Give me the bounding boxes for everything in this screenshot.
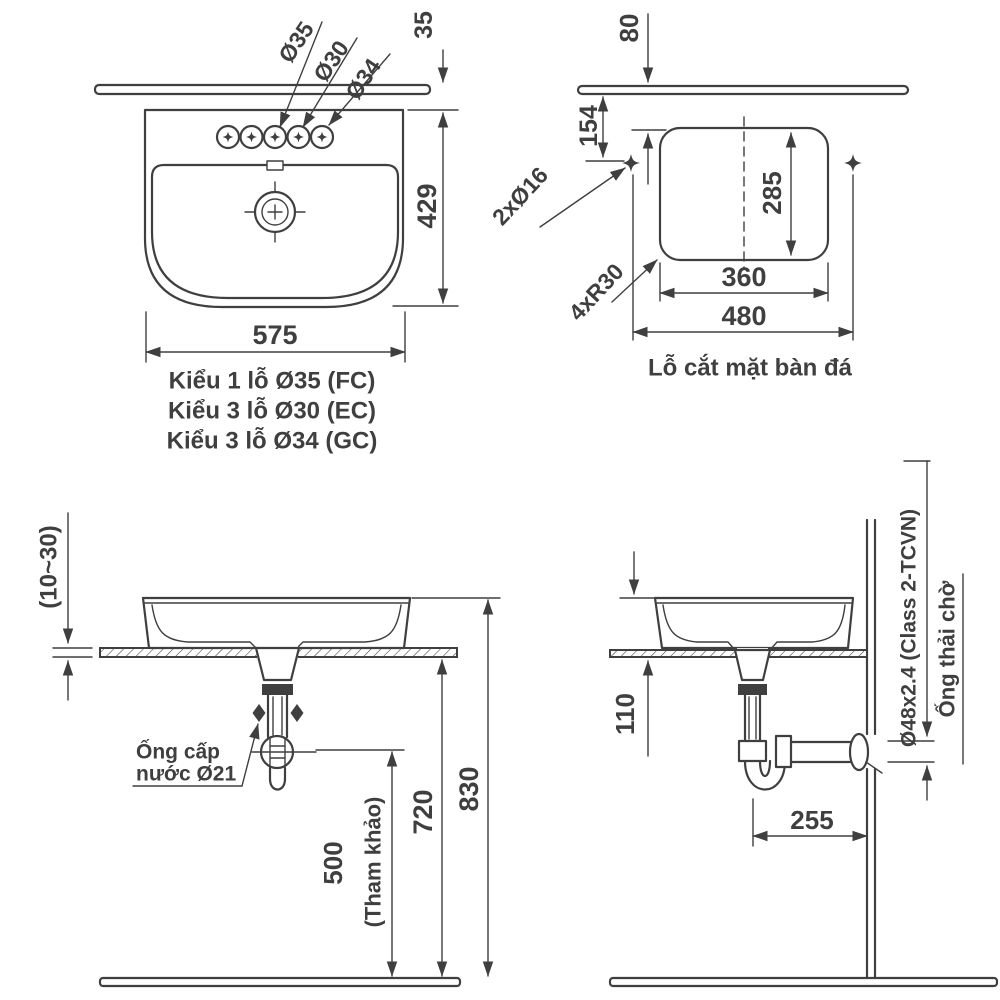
- dim-500-label: 500: [318, 841, 348, 884]
- hole-label-d35: Ø35: [273, 17, 319, 68]
- supply-point-right: [291, 704, 304, 722]
- side-install-view: 110 Ø48x2.4 (Class 2-TCVN) Ống thải chờ …: [610, 461, 997, 986]
- supply-point-left: [253, 704, 266, 722]
- drain-flange-front: [256, 648, 299, 680]
- dim-500-note: (Tham khảo): [361, 797, 386, 928]
- drain-flange-side: [735, 650, 770, 680]
- supply-label-line1: Ống cấp: [136, 740, 220, 764]
- waste-stub-label: Ống thải chờ: [934, 580, 960, 717]
- dim-429-label: 429: [412, 183, 442, 228]
- dim-154-label: 154: [575, 105, 603, 147]
- fixing-hole-right: [844, 154, 862, 172]
- drain-pipe-label: Ø48x2.4 (Class 2-TCVN): [898, 509, 921, 747]
- plan-view: Ø35 Ø30 Ø34 35 429 575 Kiểu 1 lỗ Ø35 (FC…: [95, 11, 458, 454]
- drain-nut-front: [262, 684, 293, 695]
- floor-line-side: [610, 978, 997, 986]
- dim-480-label: 480: [721, 301, 766, 331]
- dim-830-label: 830: [454, 766, 484, 811]
- drain-nut-side: [738, 684, 767, 695]
- fixing-hole-left: [622, 154, 640, 172]
- dim-80-label: 80: [614, 14, 644, 43]
- caption-type-ec: Kiểu 3 lỗ Ø30 (EC): [168, 397, 376, 425]
- sink-installation-drawing: Ø35 Ø30 Ø34 35 429 575 Kiểu 1 lỗ Ø35 (FC…: [0, 0, 1000, 1000]
- caption-type-fc: Kiểu 1 lỗ Ø35 (FC): [169, 367, 376, 395]
- dim-360-label: 360: [721, 262, 766, 292]
- wall-line-plan: [95, 85, 430, 94]
- caption-type-gc: Kiểu 3 lỗ Ø34 (GC): [167, 427, 378, 455]
- supply-leader: [242, 724, 258, 786]
- p-trap-inner: [760, 761, 770, 776]
- cutout-view: 80 154 285 2xØ16 4xR30 360 480 Lỗ cắt mặ…: [487, 14, 908, 382]
- dim-110-label: 110: [610, 693, 640, 735]
- leader-2xd16: [540, 168, 625, 227]
- cutout-caption: Lỗ cắt mặt bàn đá: [648, 354, 853, 382]
- dim-255-label: 255: [790, 805, 833, 835]
- technical-drawing-page: Ø35 Ø30 Ø34 35 429 575 Kiểu 1 lỗ Ø35 (FC…: [0, 0, 1000, 1000]
- dim-10-30-label: (10~30): [36, 525, 63, 608]
- wall-line-cutout: [578, 86, 908, 94]
- hole-label-d34: Ø34: [340, 54, 386, 105]
- dim-285-label: 285: [757, 171, 787, 214]
- label-2xd16: 2xØ16: [487, 162, 553, 230]
- stub-cap-front: [270, 779, 285, 790]
- floor-line-front: [100, 978, 460, 986]
- overflow-notch: [267, 161, 283, 170]
- pipe-union-nut: [776, 736, 791, 767]
- dim-575-label: 575: [252, 320, 297, 350]
- sink-section-front: [143, 598, 410, 648]
- front-install-view: (10~30) Ống cấp nước Ø21 5: [36, 513, 501, 986]
- wall-pipe-collar: [850, 734, 868, 770]
- faucet-holes: [217, 126, 333, 148]
- trap-nut: [739, 741, 766, 761]
- dim-35-label: 35: [410, 11, 438, 39]
- label-4xr30: 4xR30: [563, 258, 628, 325]
- supply-label-line2: nước Ø21: [136, 763, 236, 786]
- dim-720-label: 720: [408, 789, 438, 834]
